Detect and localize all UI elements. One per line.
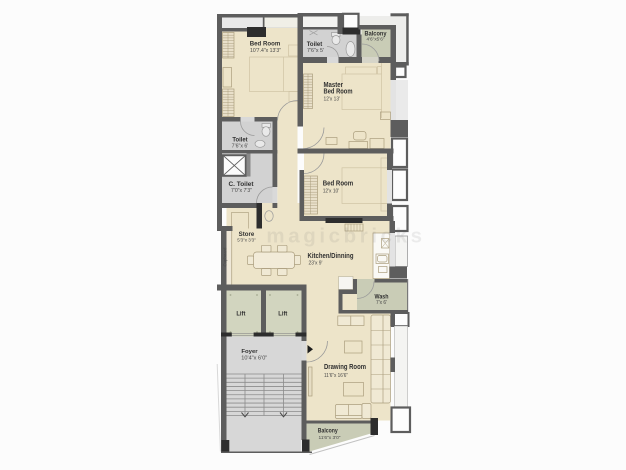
svg-text:12'x 10': 12'x 10': [323, 189, 340, 195]
svg-text:10'4"x 6'0": 10'4"x 6'0": [241, 355, 267, 361]
svg-text:Store: Store: [239, 232, 255, 238]
svg-text:Bed Room: Bed Room: [324, 89, 353, 96]
svg-text:4'6"x5'6": 4'6"x5'6": [367, 37, 385, 42]
svg-text:Bed Room: Bed Room: [323, 181, 354, 188]
svg-text:Balcony: Balcony: [318, 429, 339, 435]
svg-text:Toilet: Toilet: [232, 137, 248, 144]
svg-text:7'x 6': 7'x 6': [376, 300, 387, 306]
svg-text:7'0"x 7'3": 7'0"x 7'3": [231, 188, 252, 194]
svg-text:Lift: Lift: [236, 311, 246, 318]
svg-text:23'x 9': 23'x 9': [309, 261, 323, 267]
svg-text:Bed Room: Bed Room: [250, 41, 281, 48]
svg-text:7'6"x 6': 7'6"x 6': [232, 144, 249, 150]
svg-text:12'x 13': 12'x 13': [324, 97, 341, 103]
svg-text:11'6"x 16'6": 11'6"x 16'6": [324, 373, 348, 379]
svg-text:11'6"x 3'0": 11'6"x 3'0": [319, 435, 341, 441]
svg-text:Toilet: Toilet: [307, 41, 323, 48]
svg-text:Kitchen/Dinning: Kitchen/Dinning: [308, 253, 354, 260]
svg-text:5'3"x 3'3": 5'3"x 3'3": [237, 238, 256, 244]
svg-text:Lift: Lift: [278, 311, 288, 318]
svg-text:Cupboard: Cupboard: [223, 247, 228, 266]
svg-text:10'7.4"x 13'3": 10'7.4"x 13'3": [250, 48, 281, 54]
svg-text:Drawing Room: Drawing Room: [324, 364, 366, 371]
svg-text:7'6"x 5': 7'6"x 5': [307, 48, 324, 54]
svg-text:magicbricks: magicbricks: [266, 225, 425, 248]
svg-text:Foyer: Foyer: [241, 349, 258, 355]
